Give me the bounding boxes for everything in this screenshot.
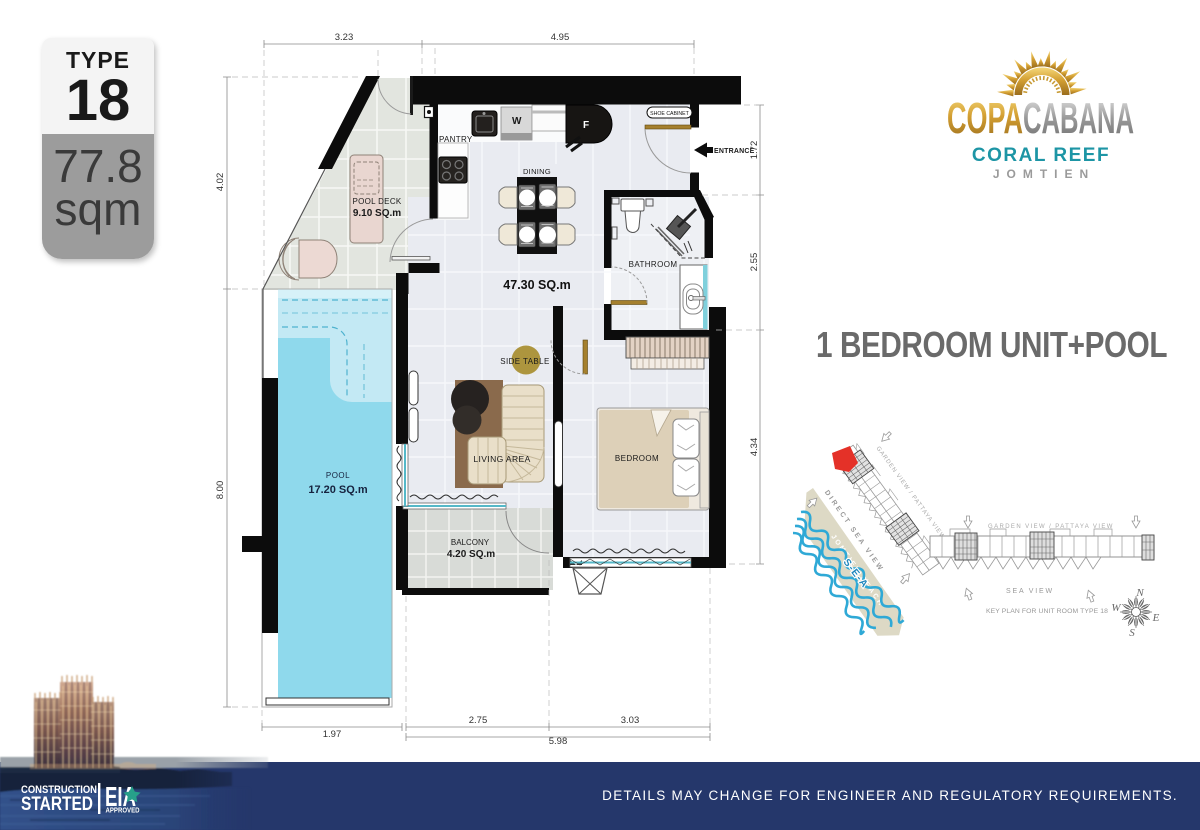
svg-text:CABANA: CABANA [1023,93,1134,143]
svg-text:8.00: 8.00 [215,481,226,500]
svg-text:2.55: 2.55 [749,253,760,272]
svg-text:W: W [1111,602,1121,614]
svg-text:S: S [1129,627,1135,639]
svg-text:1.72: 1.72 [749,141,760,160]
svg-text:SHOE CABINET: SHOE CABINET [650,111,689,117]
svg-text:W: W [512,116,522,127]
svg-text:9.10 SQ.m: 9.10 SQ.m [353,208,401,219]
svg-text:BALCONY: BALCONY [451,538,490,547]
svg-text:CORAL REEF: CORAL REEF [972,145,1110,166]
svg-text:KEY PLAN FOR UNIT ROOM TYPE 18: KEY PLAN FOR UNIT ROOM TYPE 18 [986,608,1108,615]
svg-text:4.02: 4.02 [215,173,226,192]
svg-text:4.34: 4.34 [749,438,760,457]
svg-text:POOL: POOL [326,471,350,480]
svg-text:SIDE TABLE: SIDE TABLE [500,357,550,366]
svg-text:COPA: COPA [947,93,1023,143]
svg-text:47.30 SQ.m: 47.30 SQ.m [503,278,570,292]
svg-text:GARDEN VIEW / PATTAYA VIEW: GARDEN VIEW / PATTAYA VIEW [988,524,1114,530]
svg-text:APPROVED: APPROVED [106,806,140,815]
svg-text:POOL DECK: POOL DECK [352,197,401,206]
svg-text:3.03: 3.03 [621,715,640,726]
svg-text:SEA VIEW: SEA VIEW [1006,588,1054,595]
svg-text:E: E [1152,612,1160,624]
svg-text:BATHROOM: BATHROOM [629,260,678,269]
svg-text:4.95: 4.95 [551,32,570,43]
svg-text:BEDROOM: BEDROOM [615,454,659,463]
svg-text:PANTRY: PANTRY [439,135,473,144]
svg-text:DINING: DINING [523,167,551,176]
svg-text:LIVING AREA: LIVING AREA [473,454,530,464]
svg-text:N: N [1135,587,1144,599]
svg-text:3.23: 3.23 [335,32,354,43]
svg-text:JOMTIEN: JOMTIEN [993,167,1095,181]
svg-text:17.20 SQ.m: 17.20 SQ.m [308,484,368,496]
svg-text:F: F [583,120,589,131]
svg-text:4.20 SQ.m: 4.20 SQ.m [447,549,495,560]
